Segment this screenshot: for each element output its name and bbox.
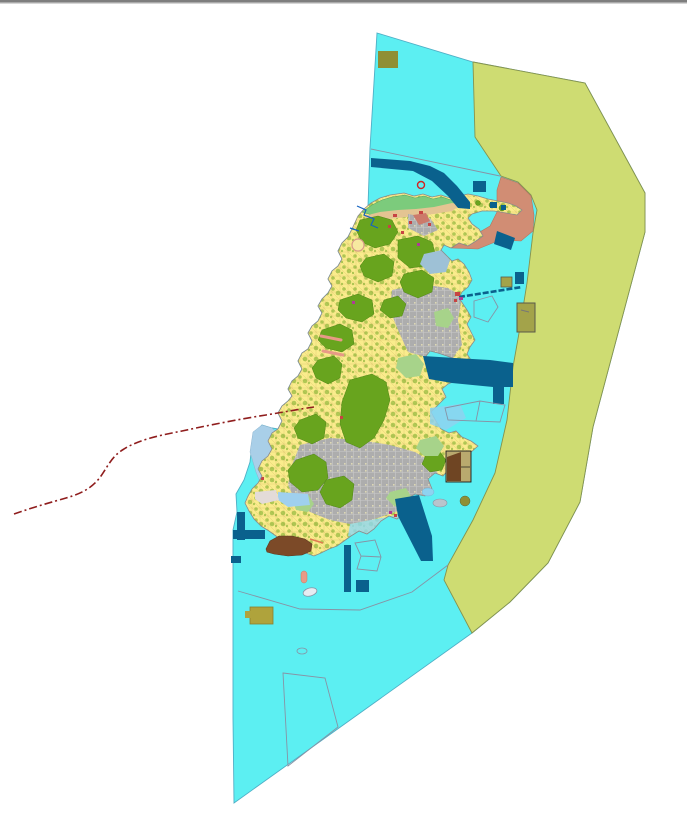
- window-divider-light: [0, 3, 687, 5]
- lightblue-islet: [422, 488, 434, 496]
- gray-islet-3: [433, 499, 447, 507]
- navy-stub-west: [231, 556, 241, 563]
- navy-mini-ne-1: [490, 202, 497, 208]
- navy-cross-vertical: [237, 512, 245, 540]
- khaki-block-south-tab: [245, 611, 252, 618]
- navy-block-ne: [473, 181, 486, 192]
- window-divider-dark: [0, 0, 687, 3]
- brown-khaki-facility-east: [446, 451, 471, 482]
- navy-square-south: [356, 580, 369, 592]
- khaki-block-pier: [501, 277, 512, 287]
- navy-bar-vertical: [344, 545, 351, 592]
- khaki-block-north: [378, 51, 398, 68]
- map-page: [0, 0, 687, 821]
- window-divider: [0, 0, 687, 4]
- khaki-dot-island: [460, 496, 470, 506]
- khaki-block-east-large: [517, 303, 535, 332]
- navy-mini-ne-2: [501, 205, 506, 210]
- map-canvas[interactable]: [0, 0, 687, 821]
- navy-block-pier-end: [515, 272, 524, 284]
- circular-landmark: [352, 239, 364, 251]
- khaki-block-south: [250, 607, 273, 624]
- salmon-islet: [301, 571, 307, 583]
